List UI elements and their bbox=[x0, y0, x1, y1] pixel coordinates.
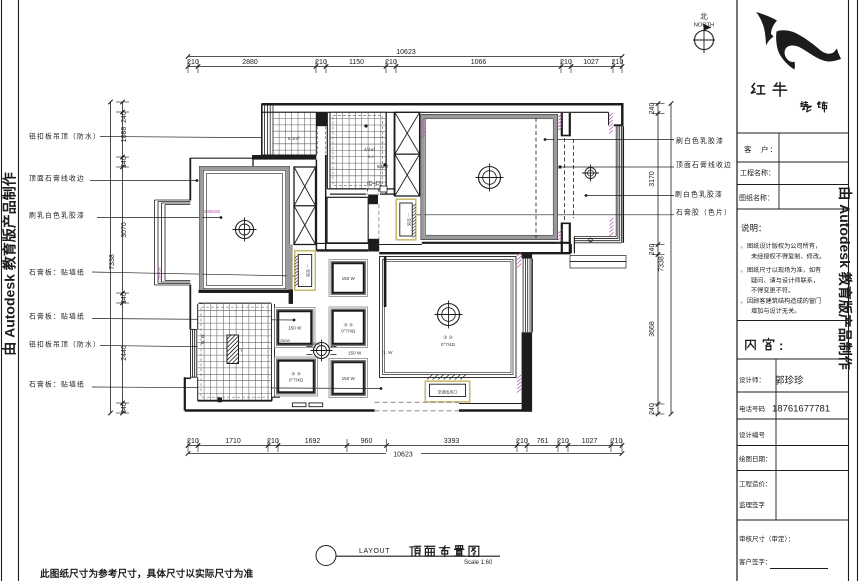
svg-text:未经授权不得复制、修改。: 未经授权不得复制、修改。 bbox=[751, 253, 825, 261]
svg-text:1027: 1027 bbox=[582, 438, 598, 445]
svg-text:250W: 250W bbox=[280, 339, 290, 343]
svg-text:210: 210 bbox=[267, 438, 279, 445]
svg-text:增加与设计无关。: 增加与设计无关。 bbox=[751, 307, 801, 315]
svg-text:18761677781: 18761677781 bbox=[772, 404, 830, 415]
svg-text:5.2: 5.2 bbox=[368, 154, 374, 159]
svg-text:— 空调: — 空调 bbox=[407, 213, 412, 226]
svg-text:210: 210 bbox=[611, 438, 623, 445]
svg-text:240: 240 bbox=[649, 244, 656, 256]
svg-text:210: 210 bbox=[187, 59, 199, 66]
svg-text:刷乳白色乳胶漆: 刷乳白色乳胶漆 bbox=[29, 211, 85, 220]
svg-text:1692: 1692 bbox=[305, 438, 321, 445]
svg-text:2880: 2880 bbox=[242, 59, 258, 66]
svg-text:(D+D): (D+D) bbox=[367, 181, 382, 187]
svg-text:250W: 250W bbox=[310, 342, 320, 346]
svg-text:铝扣板吊顶（防水）: 铝扣板吊顶（防水） bbox=[29, 340, 101, 349]
svg-text:绘图日期：: 绘图日期： bbox=[739, 454, 772, 463]
svg-text:北: 北 bbox=[700, 12, 708, 21]
svg-text:150 W: 150 W bbox=[342, 276, 356, 281]
svg-text:240: 240 bbox=[121, 402, 128, 414]
svg-text:7338: 7338 bbox=[109, 254, 116, 270]
svg-text:2350x50: 2350x50 bbox=[204, 209, 221, 214]
svg-text:3668: 3668 bbox=[649, 321, 656, 337]
svg-text:疑问、请与设计师联系，: 疑问、请与设计师联系， bbox=[751, 277, 819, 285]
svg-text:3170: 3170 bbox=[649, 171, 656, 187]
svg-text:210: 210 bbox=[315, 59, 327, 66]
svg-text:石膏板：贴墙纸: 石膏板：贴墙纸 bbox=[29, 268, 85, 277]
svg-text:石膏板：贴墙纸: 石膏板：贴墙纸 bbox=[29, 312, 85, 321]
svg-text:210: 210 bbox=[612, 59, 624, 66]
svg-text:不得变更不符。: 不得变更不符。 bbox=[751, 287, 794, 295]
svg-text:210: 210 bbox=[187, 438, 199, 445]
svg-text:图纸尺寸以现场为准，如有: 图纸尺寸以现场为准，如有 bbox=[747, 266, 821, 274]
svg-text:说明：: 说明： bbox=[741, 223, 767, 233]
svg-text:2350x50: 2350x50 bbox=[157, 266, 162, 283]
svg-text:3070: 3070 bbox=[121, 222, 128, 238]
svg-text:1088: 1088 bbox=[121, 127, 128, 143]
svg-text:210: 210 bbox=[385, 59, 397, 66]
svg-text:2440: 2440 bbox=[121, 345, 128, 361]
svg-text:监理签字: 监理签字 bbox=[739, 500, 766, 509]
svg-text:。: 。 bbox=[741, 299, 747, 305]
svg-text:240: 240 bbox=[649, 103, 656, 115]
svg-text:空调出风口: 空调出风口 bbox=[438, 389, 458, 394]
svg-text:③ ③: ③ ③ bbox=[291, 372, 301, 377]
svg-text:石膏板：贴墙纸: 石膏板：贴墙纸 bbox=[29, 380, 85, 389]
svg-text:761: 761 bbox=[537, 438, 549, 445]
svg-text:此图纸尺寸为参考尺寸，具体尺寸以实际尺寸为准: 此图纸尺寸为参考尺寸，具体尺寸以实际尺寸为准 bbox=[40, 568, 254, 580]
svg-text:0°7/4Ω: 0°7/4Ω bbox=[441, 342, 456, 347]
svg-text:240: 240 bbox=[121, 111, 128, 123]
svg-text:铝扣板吊顶（防水）: 铝扣板吊顶（防水） bbox=[29, 132, 101, 141]
svg-text:240: 240 bbox=[121, 156, 128, 168]
svg-text:LAYOUT: LAYOUT bbox=[359, 548, 390, 555]
svg-text:1066: 1066 bbox=[471, 59, 487, 66]
svg-text:210: 210 bbox=[516, 438, 528, 445]
svg-text:Scale 1:60: Scale 1:60 bbox=[464, 560, 493, 566]
svg-text::: : bbox=[779, 338, 783, 353]
svg-text:3393: 3393 bbox=[444, 438, 460, 445]
svg-text:③ ③: ③ ③ bbox=[443, 335, 453, 340]
svg-text:6.1m²: 6.1m² bbox=[288, 136, 300, 141]
svg-text:因顾客建筑结构造成的窗门: 因顾客建筑结构造成的窗门 bbox=[747, 297, 821, 305]
svg-text:240: 240 bbox=[649, 403, 656, 415]
svg-text:电话号码: 电话号码 bbox=[739, 404, 766, 413]
svg-text:刷白色乳胶漆: 刷白色乳胶漆 bbox=[676, 136, 724, 145]
svg-text:顶面石膏线收边: 顶面石膏线收边 bbox=[29, 174, 85, 183]
svg-text:— 空调: — 空调 bbox=[306, 264, 311, 277]
svg-text:审核尺寸（审定）：: 审核尺寸（审定）： bbox=[739, 534, 794, 543]
svg-text:7338: 7338 bbox=[659, 256, 666, 272]
svg-text:工程造价：: 工程造价： bbox=[739, 479, 772, 488]
svg-text:0°7/4Ω: 0°7/4Ω bbox=[341, 328, 356, 333]
svg-text:10623: 10623 bbox=[396, 49, 416, 56]
svg-text:960: 960 bbox=[361, 438, 373, 445]
svg-text:郭珍珍: 郭珍珍 bbox=[775, 375, 804, 387]
svg-text:工程名称：: 工程名称： bbox=[740, 168, 775, 177]
svg-text:石膏胶（色片）: 石膏胶（色片） bbox=[676, 208, 732, 217]
svg-text:客户签字：: 客户签字： bbox=[739, 557, 772, 566]
svg-text:1027: 1027 bbox=[583, 59, 599, 66]
svg-text:210: 210 bbox=[560, 59, 572, 66]
svg-text:1. W: 1. W bbox=[383, 350, 393, 355]
svg-text:。: 。 bbox=[741, 268, 747, 274]
svg-text:0°7/4Ω: 0°7/4Ω bbox=[289, 378, 304, 383]
svg-text:设计编号: 设计编号 bbox=[739, 430, 766, 439]
svg-text:150 W: 150 W bbox=[288, 326, 302, 331]
svg-text:1150: 1150 bbox=[349, 59, 364, 66]
svg-text:刷白色乳胶漆: 刷白色乳胶漆 bbox=[675, 190, 723, 199]
svg-text:150 W: 150 W bbox=[342, 376, 356, 381]
svg-text:由 Autodesk 教育版产品制作: 由 Autodesk 教育版产品制作 bbox=[2, 172, 18, 356]
svg-text:Ø: Ø bbox=[201, 340, 205, 345]
svg-text:210: 210 bbox=[557, 438, 569, 445]
svg-text:顶面石膏线收边: 顶面石膏线收边 bbox=[676, 160, 732, 169]
svg-text:设计师：: 设计师： bbox=[739, 375, 765, 384]
svg-text:③ ③: ③ ③ bbox=[343, 322, 353, 327]
svg-text:150 W: 150 W bbox=[348, 351, 362, 356]
svg-text:10623: 10623 bbox=[393, 452, 413, 459]
svg-text:1710: 1710 bbox=[225, 438, 241, 445]
svg-text:4/4㎡: 4/4㎡ bbox=[364, 146, 375, 152]
svg-text:Ø: Ø bbox=[201, 334, 205, 339]
svg-text:客 户：: 客 户： bbox=[744, 144, 778, 154]
svg-text:240: 240 bbox=[121, 292, 128, 304]
svg-text:图纸名称：: 图纸名称： bbox=[739, 193, 774, 202]
svg-text:。: 。 bbox=[741, 244, 747, 250]
svg-text:图纸设计版权为公司所有，: 图纸设计版权为公司所有， bbox=[747, 242, 821, 250]
svg-text:8d1.7: 8d1.7 bbox=[377, 164, 389, 169]
svg-text:由 Autodesk 教育版产品制作: 由 Autodesk 教育版产品制作 bbox=[837, 186, 853, 370]
